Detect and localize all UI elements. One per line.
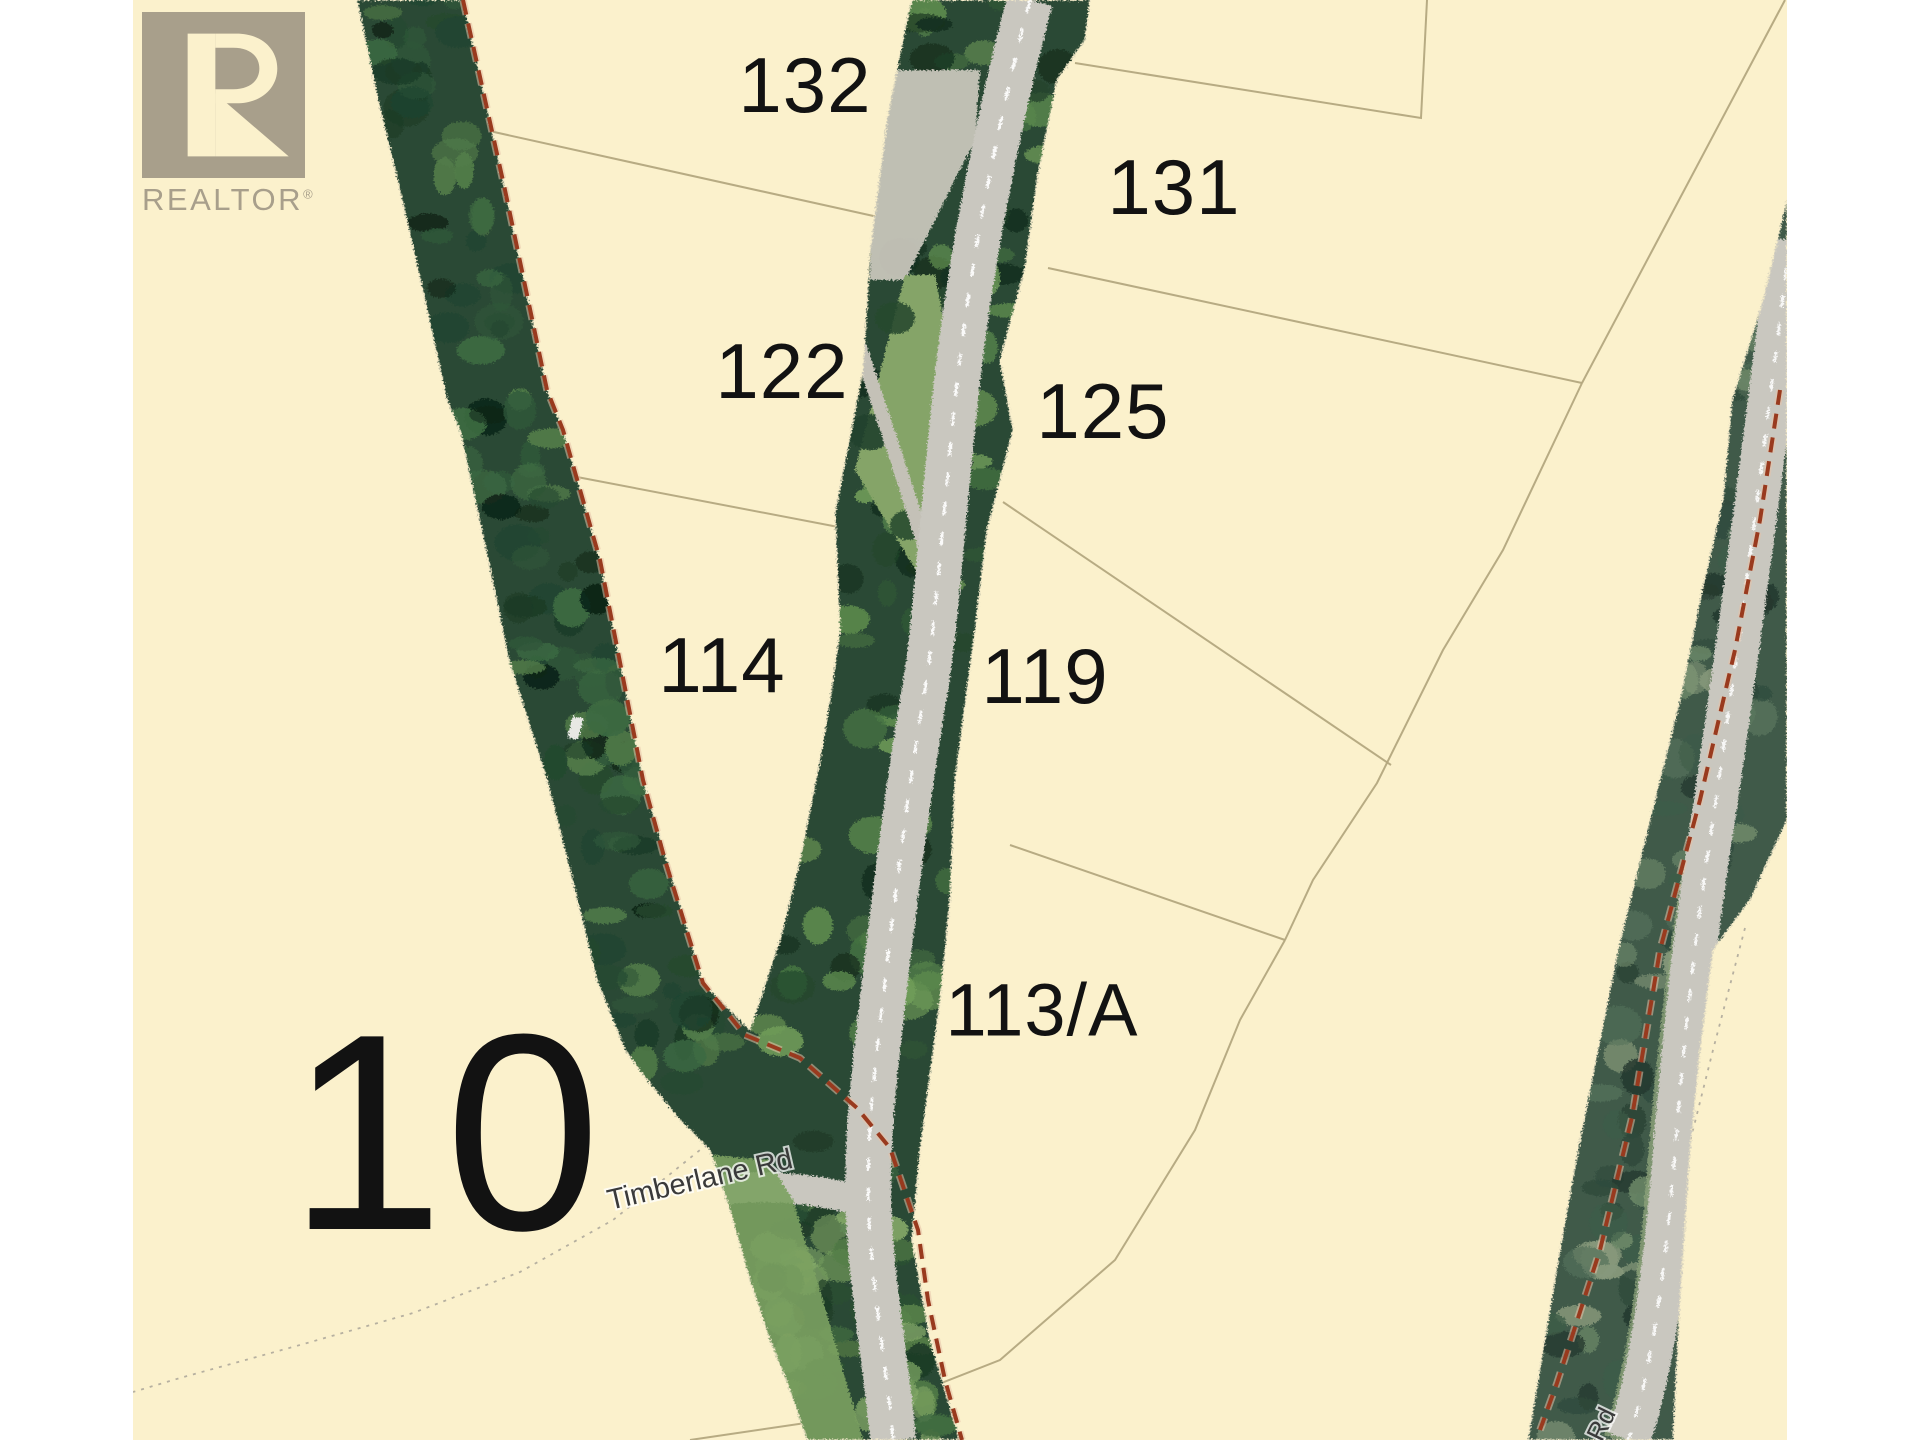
parcel-label-114: 114	[658, 621, 785, 709]
parcel-label-131: 131	[1107, 143, 1240, 231]
realtor-logo-brand: REALTOR	[142, 182, 303, 217]
map-svg: 132 131 122 125 114 119 113/A 10 Timberl…	[133, 0, 1787, 1440]
realtor-logo-text: REALTOR®	[142, 184, 342, 215]
map-content: 132 131 122 125 114 119 113/A 10 Timberl…	[133, 0, 1787, 1440]
realtor-logo-registered: ®	[303, 187, 313, 202]
parcel-label-125: 125	[1036, 367, 1169, 455]
realtor-logo-mark	[142, 12, 305, 178]
parcel-label-113A: 113/A	[946, 969, 1139, 1052]
parcel-label-119: 119	[981, 632, 1108, 720]
realtor-logo: REALTOR®	[142, 12, 342, 215]
parcel-label-122: 122	[715, 327, 848, 415]
parcel-label-132: 132	[738, 41, 871, 129]
plat-map-page: 132 131 122 125 114 119 113/A 10 Timberl…	[0, 0, 1920, 1440]
parcel-label-10: 10	[288, 977, 601, 1289]
